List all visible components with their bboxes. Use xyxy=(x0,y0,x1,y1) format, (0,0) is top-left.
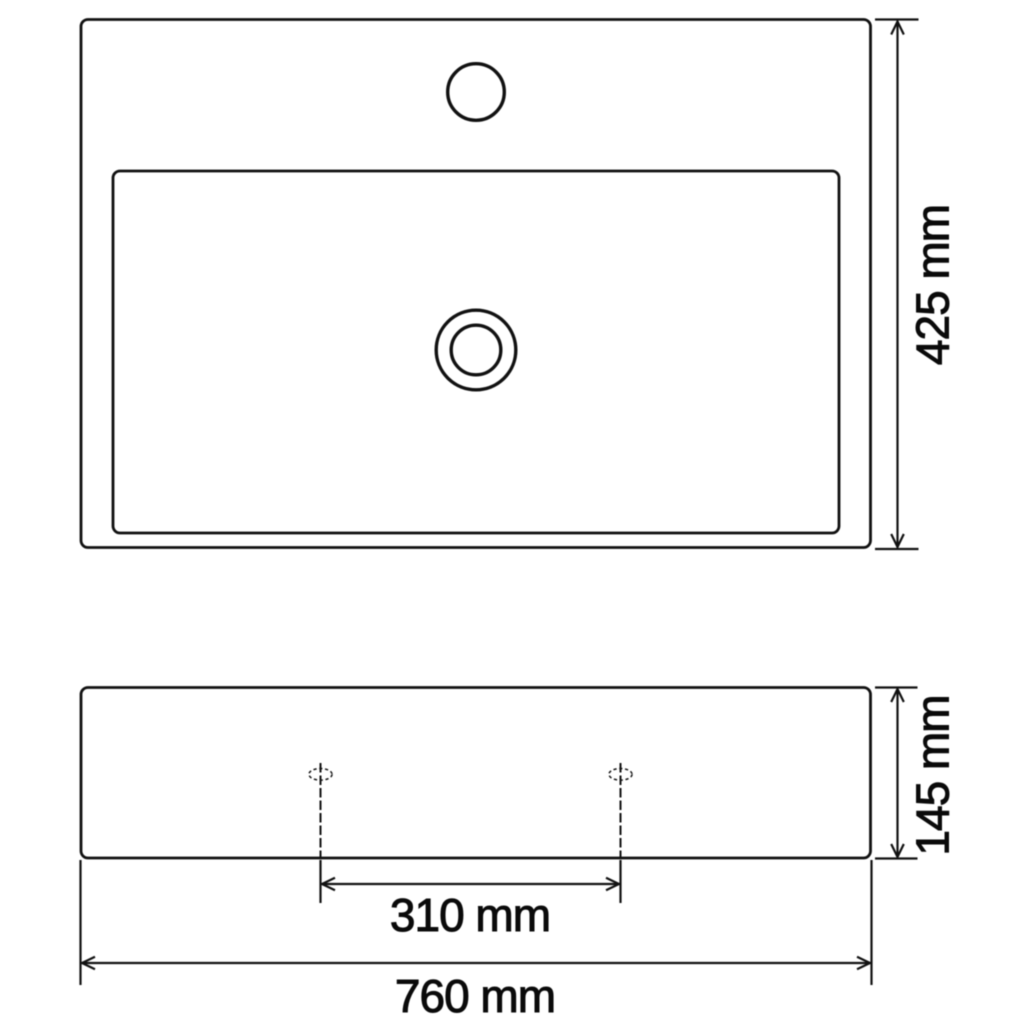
svg-text:425 mm: 425 mm xyxy=(907,205,959,365)
svg-text:760 mm: 760 mm xyxy=(395,970,555,1022)
svg-text:145 mm: 145 mm xyxy=(907,695,959,855)
svg-text:310 mm: 310 mm xyxy=(390,889,550,941)
